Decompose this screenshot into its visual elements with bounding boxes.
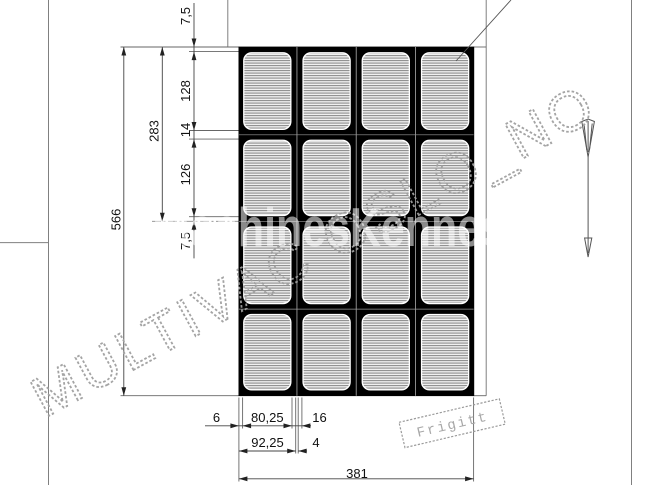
- svg-text:6: 6: [213, 410, 220, 425]
- svg-text:381: 381: [346, 466, 368, 481]
- svg-text:machinesKennes: machinesKennes: [152, 197, 505, 258]
- svg-text:14: 14: [178, 123, 193, 137]
- svg-text:566: 566: [109, 209, 124, 231]
- svg-text:16: 16: [312, 410, 326, 425]
- svg-text:283: 283: [147, 120, 162, 142]
- svg-text:126: 126: [178, 164, 193, 186]
- svg-text:4: 4: [312, 435, 319, 450]
- svg-text:80,25: 80,25: [251, 410, 284, 425]
- svg-text:128: 128: [178, 80, 193, 102]
- svg-text:92,25: 92,25: [251, 435, 284, 450]
- svg-text:7,5: 7,5: [178, 7, 193, 25]
